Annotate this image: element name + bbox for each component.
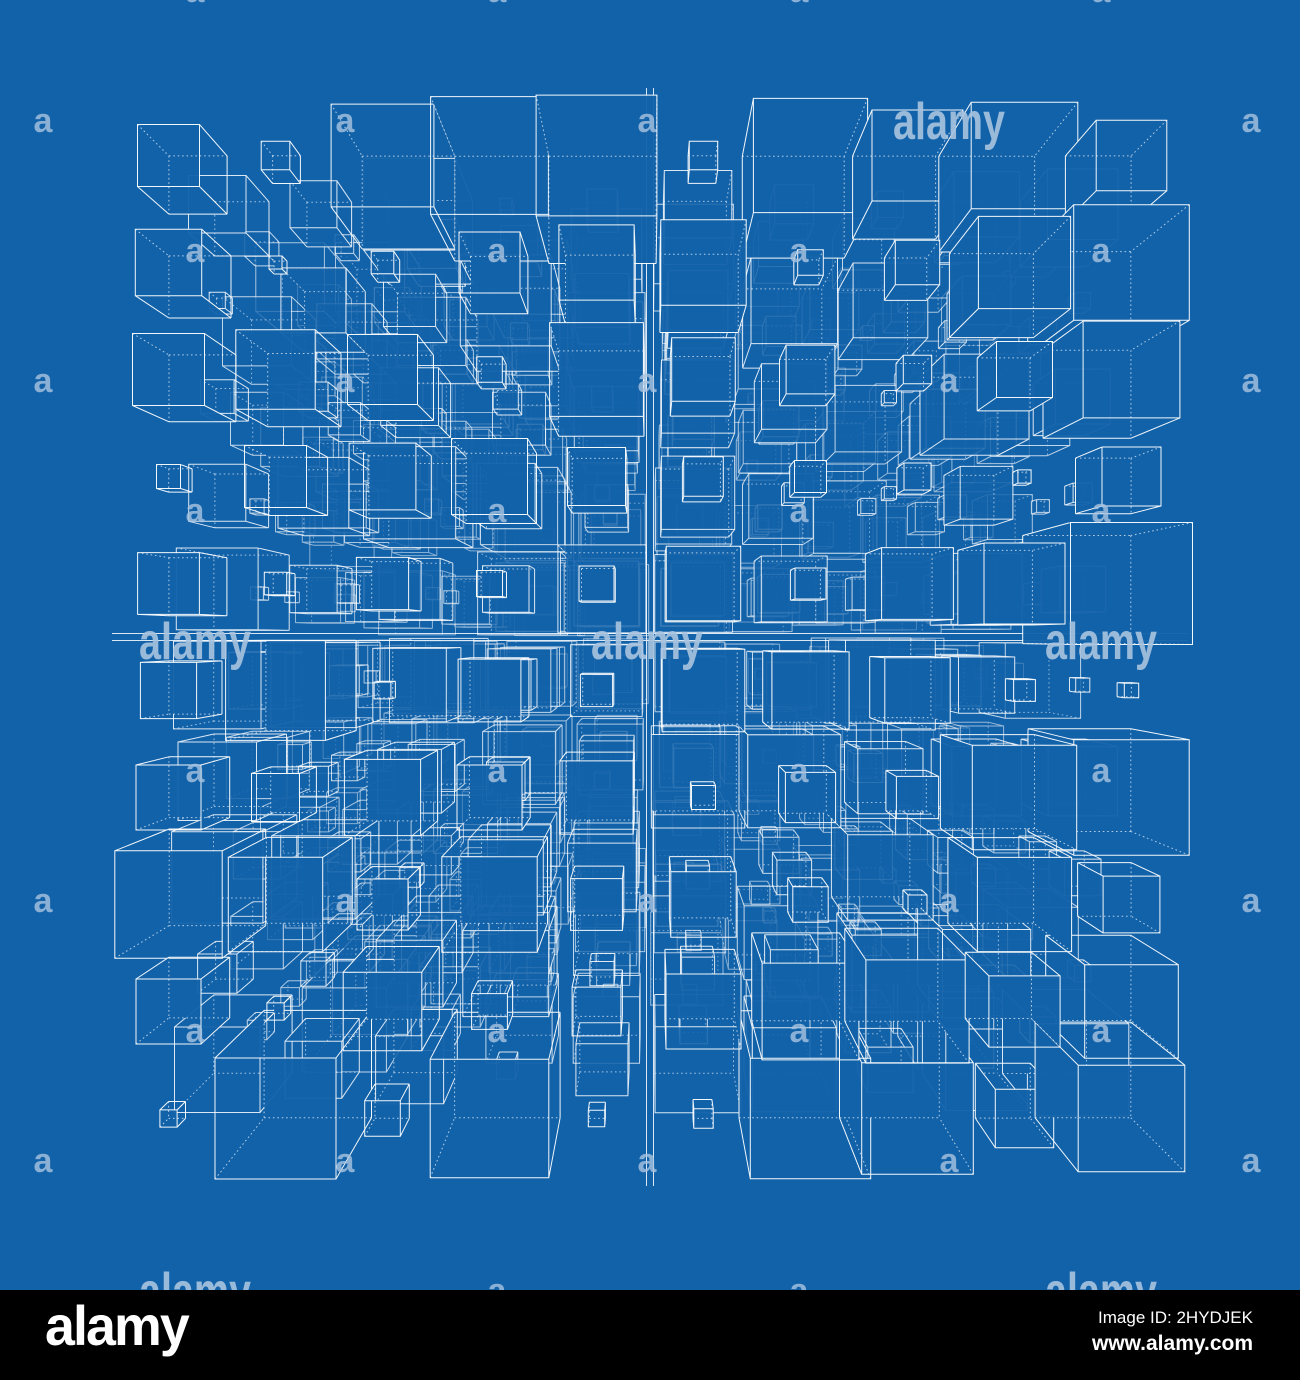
watermark-layer: aaaaaaaaaaaaaaaaaaaaaaaaaaaaaaaaaaaaaaaa… (0, 0, 1300, 1380)
alamy-url-text: www.alamy.com (1092, 1330, 1253, 1357)
watermark-a: a (638, 1142, 658, 1180)
watermark-a: a (940, 362, 960, 400)
watermark-a: a (638, 362, 658, 400)
watermark-a: a (488, 492, 508, 530)
watermark-a: a (1092, 232, 1112, 270)
watermark-a: a (336, 882, 356, 920)
watermark-a: a (488, 0, 508, 10)
watermark-alamy-word: alamy (139, 613, 251, 671)
watermark-a: a (488, 752, 508, 790)
stock-image-page: aaaaaaaaaaaaaaaaaaaaaaaaaaaaaaaaaaaaaaaa… (0, 0, 1300, 1380)
watermark-a: a (790, 0, 810, 10)
watermark-a: a (1242, 102, 1262, 140)
watermark-a: a (638, 102, 658, 140)
watermark-alamy-word: alamy (893, 93, 1005, 151)
watermark-a: a (34, 102, 54, 140)
watermark-a: a (1092, 0, 1112, 10)
watermark-a: a (1092, 752, 1112, 790)
watermark-a: a (790, 232, 810, 270)
watermark-a: a (34, 1142, 54, 1180)
watermark-a: a (186, 232, 206, 270)
watermark-a: a (1242, 362, 1262, 400)
watermark-alamy-word: alamy (591, 613, 703, 671)
watermark-a: a (336, 362, 356, 400)
watermark-a: a (488, 1012, 508, 1050)
watermark-a: a (1092, 492, 1112, 530)
watermark-a: a (336, 102, 356, 140)
watermark-a: a (336, 1142, 356, 1180)
watermark-a: a (186, 1012, 206, 1050)
watermark-a: a (1092, 1012, 1112, 1050)
watermark-a: a (790, 752, 810, 790)
watermark-a: a (1242, 1142, 1262, 1180)
watermark-alamy-word: alamy (1045, 613, 1157, 671)
footer-bar: alamy Image ID: 2HYDJEK www.alamy.com (0, 1290, 1300, 1380)
watermark-a: a (34, 362, 54, 400)
image-id-text: Image ID: 2HYDJEK (1092, 1307, 1253, 1330)
footer-info: Image ID: 2HYDJEK www.alamy.com (1092, 1307, 1253, 1357)
watermark-a: a (1242, 882, 1262, 920)
watermark-a: a (488, 232, 508, 270)
watermark-a: a (186, 0, 206, 10)
watermark-a: a (186, 492, 206, 530)
watermark-a: a (186, 752, 206, 790)
watermark-a: a (638, 882, 658, 920)
watermark-a: a (790, 1012, 810, 1050)
watermark-a: a (790, 492, 810, 530)
watermark-a: a (940, 1142, 960, 1180)
alamy-logo: alamy (45, 1298, 188, 1354)
watermark-a: a (34, 882, 54, 920)
watermark-a: a (940, 882, 960, 920)
watermark-tiles: aaaaaaaaaaaaaaaaaaaaaaaaaaaaaaaaaaaaaaaa… (34, 0, 1262, 1321)
